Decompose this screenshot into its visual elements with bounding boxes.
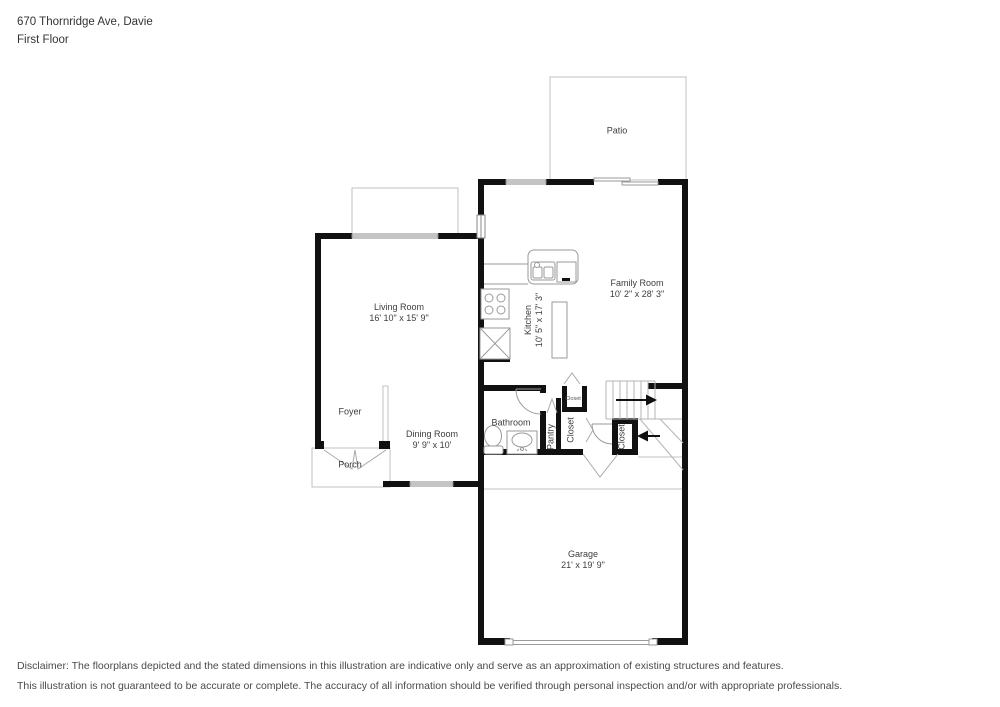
kitchen-sink-icon <box>531 262 555 280</box>
exterior-walls <box>315 179 688 645</box>
room-label-kitchen: Kitchen 10' 5" x 17' 3" <box>523 293 545 347</box>
bay-window <box>352 188 458 234</box>
small-closet-door <box>564 373 580 384</box>
disclaimer: Disclaimer: The floorplans depicted and … <box>17 660 842 700</box>
stairs-down-arrow-icon <box>637 431 660 442</box>
room-label-closet-small: Closet <box>565 396 581 402</box>
pantry-door <box>547 399 557 413</box>
room-label-foyer: Foyer <box>338 407 361 418</box>
disclaimer-line-2: This illustration is not guaranteed to b… <box>17 680 842 692</box>
room-label-closet-stairs: Closet <box>617 424 628 450</box>
bathroom-sink-icon <box>507 431 537 454</box>
garage-boundary-line <box>484 457 682 489</box>
hall-closet-door <box>586 418 593 442</box>
room-label-dining-room: Dining Room 9' 9" x 10' <box>406 429 458 451</box>
floorplan-page: 670 Thornridge Ave, Davie First Floor <box>0 0 1000 707</box>
room-label-bathroom: Bathroom <box>491 418 530 429</box>
stairs-up-arrow-icon <box>616 395 657 406</box>
floorplan-drawing <box>0 0 1000 707</box>
room-label-garage: Garage 21' x 19' 9" <box>561 549 605 571</box>
room-label-closet-hall: Closet <box>566 417 577 443</box>
bathroom-door <box>516 389 541 414</box>
dishwasher-icon <box>557 262 576 282</box>
refrigerator-icon <box>480 328 510 359</box>
disclaimer-line-1: Disclaimer: The floorplans depicted and … <box>17 660 842 672</box>
toilet-icon <box>484 426 503 455</box>
front-door <box>583 454 618 477</box>
room-label-pantry: Pantry <box>546 424 557 450</box>
garage-door <box>505 639 657 645</box>
foyer-partition <box>383 386 388 448</box>
stove-icon <box>481 289 509 319</box>
room-label-family-room: Family Room 10' 2" x 28' 3" <box>610 278 664 300</box>
room-label-living-room: Living Room 16' 10" x 15' 9" <box>369 302 428 324</box>
stairs-closet-door <box>592 424 612 444</box>
room-label-porch: Porch <box>338 460 362 471</box>
kitchen-island <box>552 302 567 358</box>
room-label-patio: Patio <box>607 126 628 137</box>
